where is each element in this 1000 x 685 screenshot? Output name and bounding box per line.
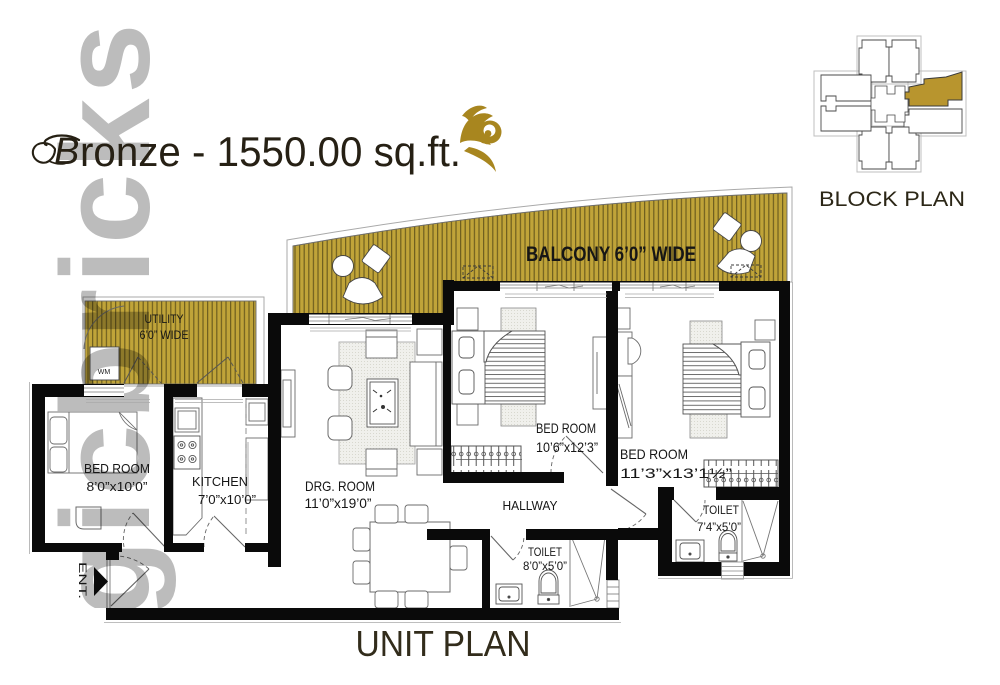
svg-text:7’4”x5’0”: 7’4”x5’0” xyxy=(697,520,741,534)
svg-text:magicbricks: magicbricks xyxy=(35,19,176,685)
svg-text:DRG. ROOM: DRG. ROOM xyxy=(305,478,375,494)
svg-text:BALCONY 6’0” WIDE: BALCONY 6’0” WIDE xyxy=(526,243,696,266)
svg-text:UNIT PLAN: UNIT PLAN xyxy=(356,623,531,664)
svg-text:7’0”x10’0”: 7’0”x10’0” xyxy=(198,492,256,507)
svg-text:ronze - 1550.00 sq.ft.: ronze - 1550.00 sq.ft. xyxy=(80,128,461,175)
svg-text:UTILITY: UTILITY xyxy=(145,312,184,326)
svg-text:11’0”x19’0”: 11’0”x19’0” xyxy=(305,495,372,511)
svg-text:TOILET: TOILET xyxy=(703,503,740,517)
svg-text:KITCHEN: KITCHEN xyxy=(192,474,248,489)
svg-text:11’3”x13’1½”: 11’3”x13’1½” xyxy=(620,465,732,481)
svg-text:HALLWAY: HALLWAY xyxy=(503,498,558,513)
svg-text:BED ROOM: BED ROOM xyxy=(620,446,688,462)
svg-text:8’0”x5’0”: 8’0”x5’0” xyxy=(523,559,567,573)
svg-text:ENT.: ENT. xyxy=(76,562,88,599)
svg-text:BED ROOM: BED ROOM xyxy=(84,461,150,476)
svg-text:8’0”x10’0”: 8’0”x10’0” xyxy=(87,479,148,494)
svg-text:6’0” WIDE: 6’0” WIDE xyxy=(140,328,189,342)
svg-text:BLOCK PLAN: BLOCK PLAN xyxy=(819,188,965,211)
svg-text:10’6”x12’3”: 10’6”x12’3” xyxy=(536,439,598,455)
svg-text:BED ROOM: BED ROOM xyxy=(536,420,596,436)
svg-text:TOILET: TOILET xyxy=(528,545,563,559)
